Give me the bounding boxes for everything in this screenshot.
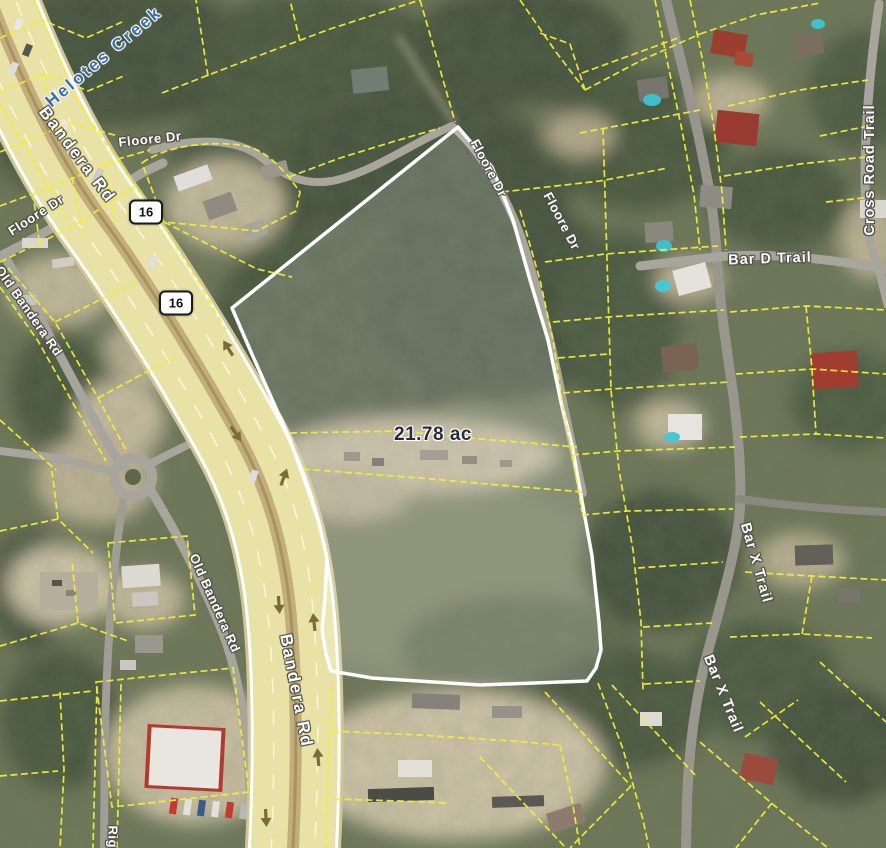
aerial-parcel-map[interactable]: Helotes Creek Bandera Rd Bandera Rd Floo… (0, 0, 886, 848)
map-canvas (0, 0, 886, 848)
route-shield-16-lower: 16 (159, 291, 193, 316)
route-shield-16-upper: 16 (129, 200, 163, 225)
